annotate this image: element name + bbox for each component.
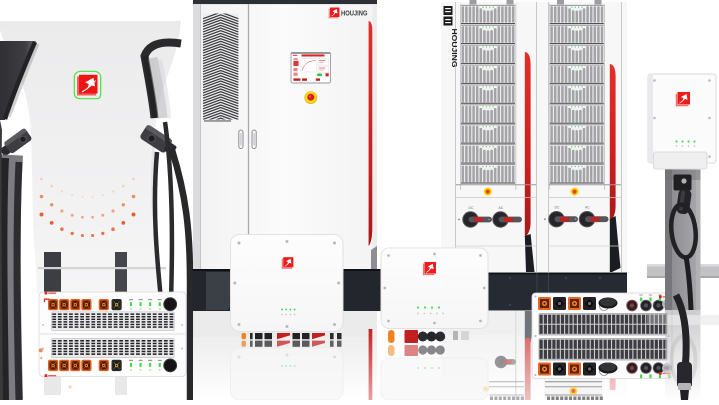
- svg-text:DC: DC: [469, 206, 474, 210]
- svg-text:AC: AC: [585, 206, 590, 210]
- svg-text:HOUJING: HOUJING: [450, 29, 459, 68]
- svg-text:HOUJING: HOUJING: [341, 8, 368, 17]
- svg-text:AC: AC: [499, 206, 504, 210]
- svg-text:DC: DC: [555, 206, 560, 210]
